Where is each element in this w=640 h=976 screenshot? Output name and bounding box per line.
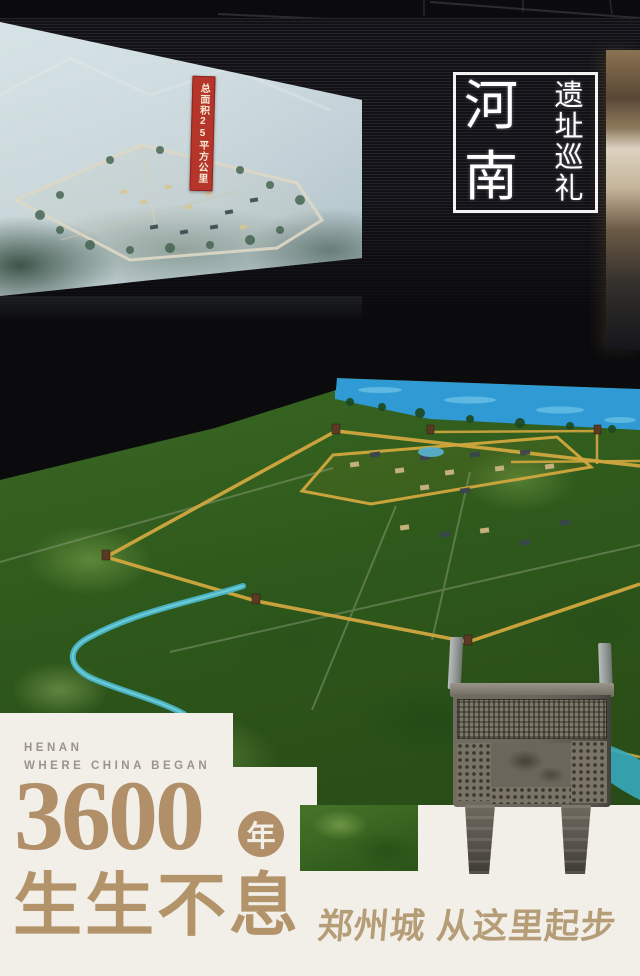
henan-heritage-seal: 河 南 遗 址 巡 礼 <box>453 72 598 213</box>
lit-wall-strip <box>606 50 640 350</box>
seal-main-characters: 河 南 <box>464 81 547 204</box>
ding-stud-panel <box>457 743 491 801</box>
ding-leg <box>561 805 591 874</box>
seal-col-char-1: 遗 <box>547 81 591 111</box>
eyebrow-line1: HENAN <box>24 740 210 758</box>
seal-char-he: 河 <box>464 81 547 133</box>
ding-center-panel <box>491 743 571 787</box>
seal-col-char-4: 礼 <box>547 174 591 204</box>
big-number-3600: 3600 <box>14 770 202 862</box>
ding-leg <box>465 805 495 874</box>
ding-body <box>453 695 611 807</box>
year-badge: 年 <box>238 811 284 857</box>
seal-side-characters: 遗 址 巡 礼 <box>547 81 591 204</box>
year-char: 年 <box>246 813 275 855</box>
seal-char-nan: 南 <box>464 152 547 204</box>
bronze-ding-image <box>447 635 617 880</box>
photo-cutout-patch <box>300 805 418 871</box>
slogan-text: 生生不息 <box>13 872 301 941</box>
screen-reflection <box>0 296 362 322</box>
exhibit-photo: 总面积25平方公里 河 南 遗 址 巡 礼 <box>0 0 640 976</box>
ding-stud-panel <box>491 787 571 804</box>
seal-col-char-2: 址 <box>547 112 591 142</box>
ding-ear-icon <box>448 637 464 689</box>
ding-stud-panel <box>571 741 607 803</box>
ding-inscription-band <box>457 699 607 739</box>
seal-col-char-3: 巡 <box>547 143 591 173</box>
area-banner: 总面积25平方公里 <box>189 76 215 192</box>
tagline-text: 郑州城 从这里起步 <box>316 898 619 949</box>
